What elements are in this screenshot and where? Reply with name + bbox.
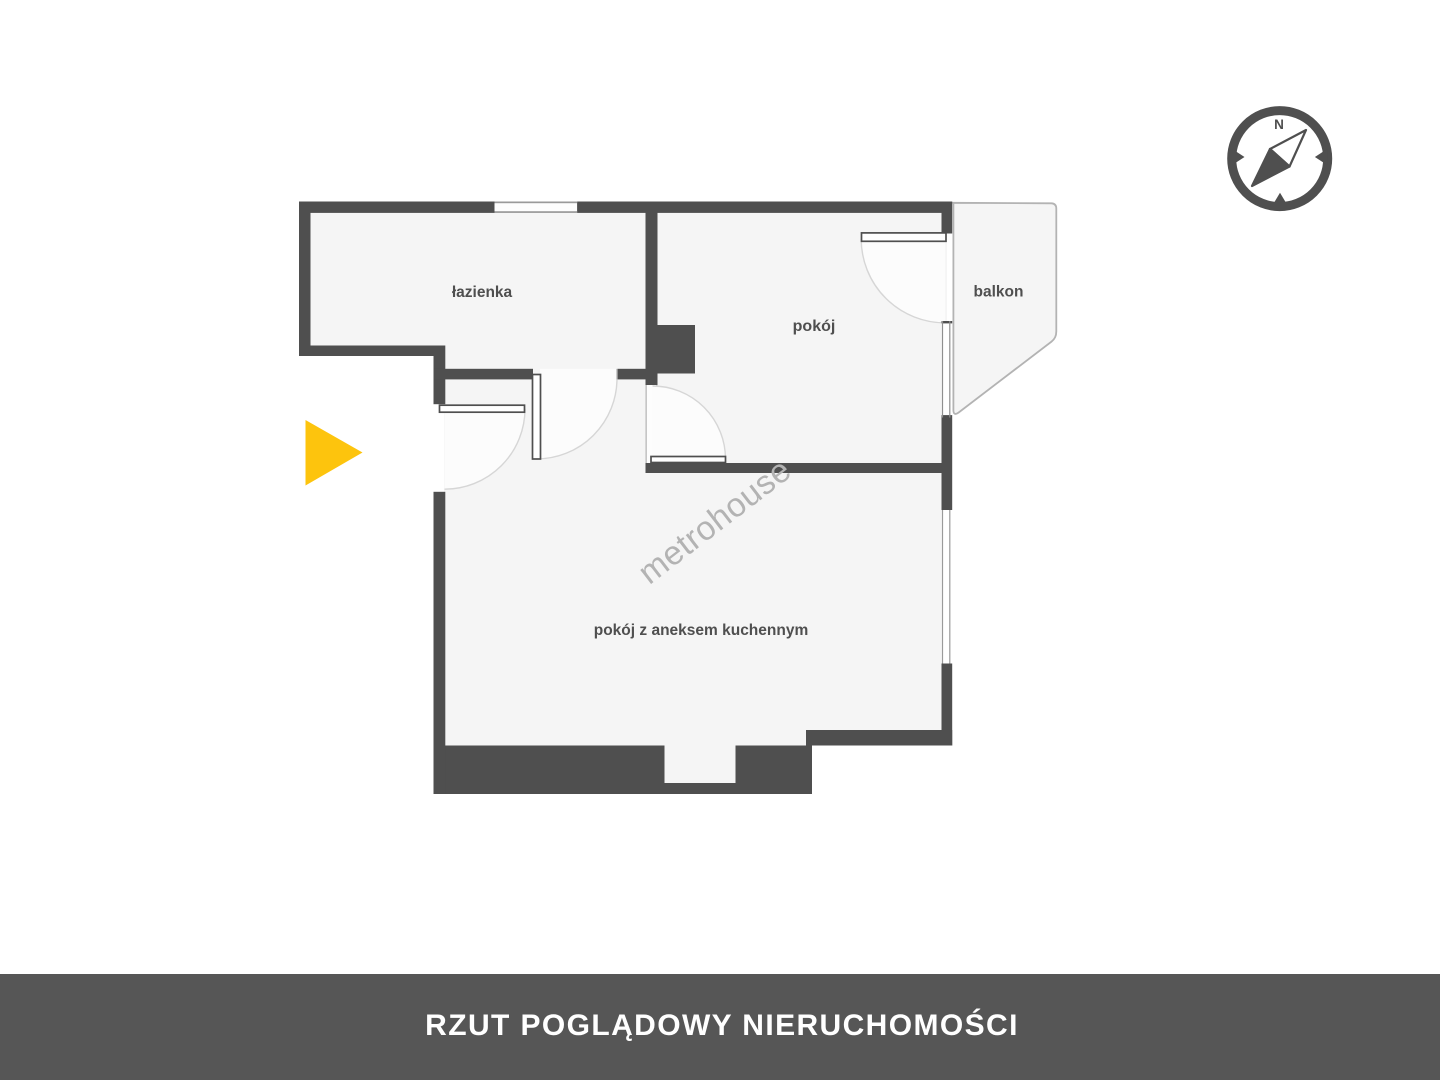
svg-text:pokój z aneksem kuchennym: pokój z aneksem kuchennym	[594, 622, 809, 639]
svg-text:N: N	[1274, 117, 1284, 132]
svg-text:balkon: balkon	[974, 284, 1024, 301]
svg-text:RZUT POGLĄDOWY NIERUCHOMOŚCI: RZUT POGLĄDOWY NIERUCHOMOŚCI	[425, 1008, 1019, 1042]
svg-text:pokój: pokój	[793, 318, 836, 335]
svg-text:łazienka: łazienka	[452, 284, 513, 301]
